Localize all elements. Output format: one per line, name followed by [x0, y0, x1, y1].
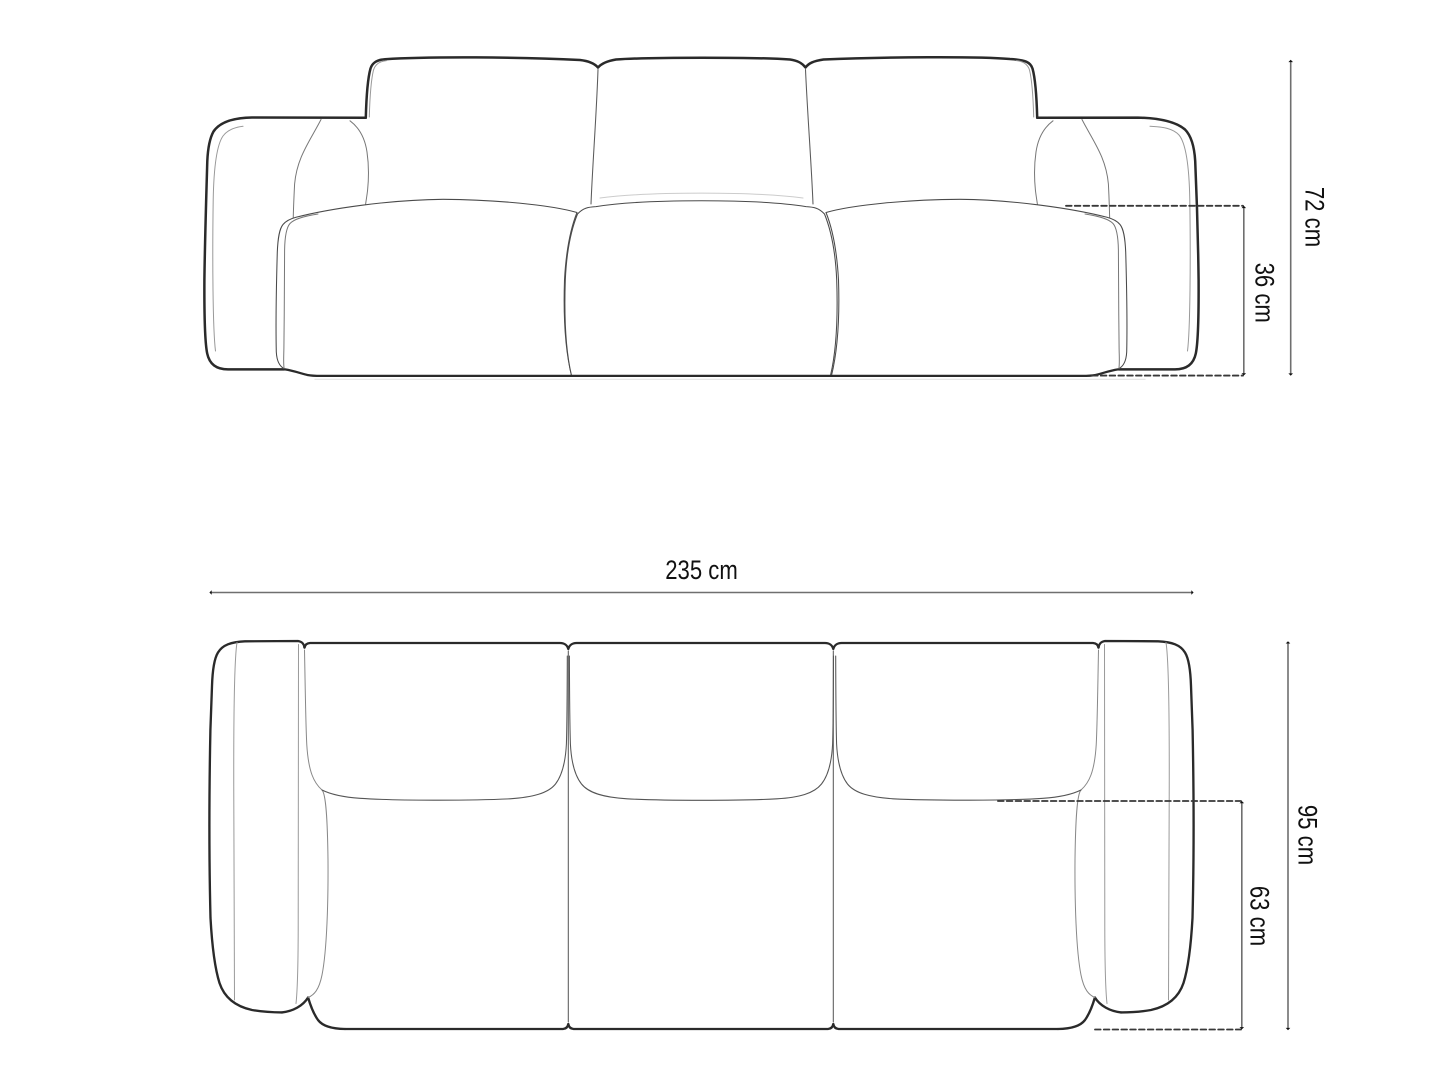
svg-text:235 cm: 235 cm	[665, 556, 738, 586]
svg-text:95 cm: 95 cm	[1292, 805, 1322, 865]
svg-text:72 cm: 72 cm	[1299, 187, 1329, 247]
svg-text:63 cm: 63 cm	[1244, 886, 1274, 946]
svg-text:36 cm: 36 cm	[1249, 263, 1279, 323]
